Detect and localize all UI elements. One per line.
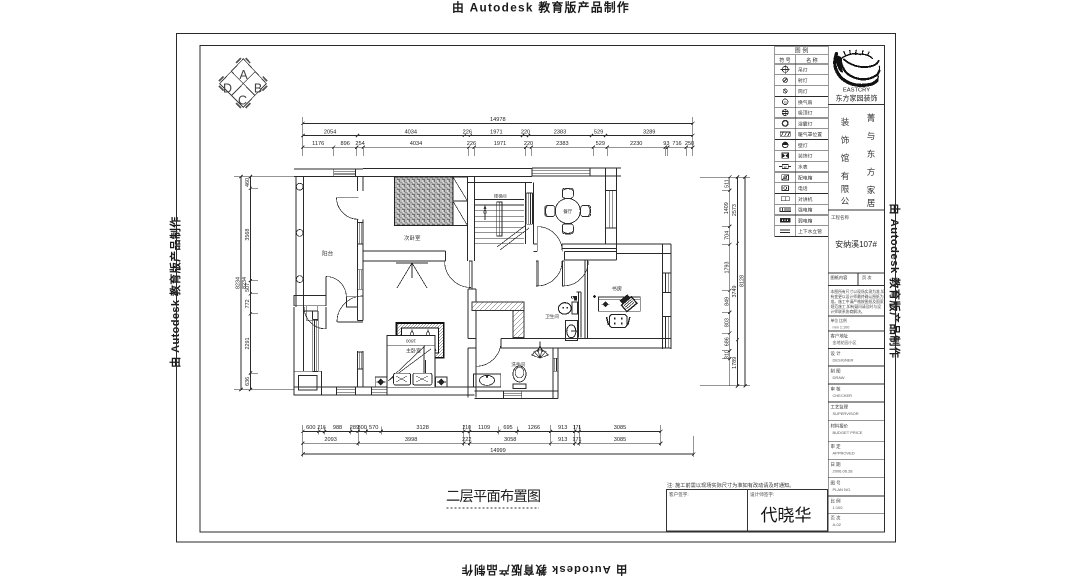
svg-text:射灯: 射灯 <box>798 77 808 84</box>
svg-text:171: 171 <box>573 425 582 431</box>
svg-text:2383: 2383 <box>556 141 568 147</box>
svg-text:G: G <box>784 101 787 105</box>
svg-text:代晓华: 代晓华 <box>761 506 812 525</box>
svg-text:A-02: A-02 <box>833 522 842 527</box>
svg-text:弱电箱: 弱电箱 <box>798 217 813 224</box>
svg-text:图纸内容: 图纸内容 <box>831 274 848 281</box>
svg-text:设计师签字:: 设计师签字: <box>750 491 774 498</box>
svg-text:570: 570 <box>369 425 378 431</box>
svg-text:460: 460 <box>245 178 251 187</box>
svg-text:913: 913 <box>558 437 567 443</box>
svg-text:装: 装 <box>841 117 850 127</box>
svg-text:226: 226 <box>463 129 472 135</box>
svg-text:卫生间: 卫生间 <box>545 313 559 320</box>
svg-text:2230: 2230 <box>630 141 642 147</box>
svg-text:东方家园装饰: 东方家园装饰 <box>836 94 878 103</box>
svg-text:220: 220 <box>521 129 530 135</box>
svg-text:3085: 3085 <box>614 437 626 443</box>
svg-text:本图所有尺寸以现场实测为准,如: 本图所有尺寸以现场实测为准,如 <box>831 289 885 294</box>
svg-text:3289: 3289 <box>643 129 655 135</box>
svg-text:东: 东 <box>867 149 876 159</box>
svg-text:EASTCRY: EASTCRY <box>843 88 870 94</box>
svg-text:529: 529 <box>594 129 603 135</box>
svg-text:菁: 菁 <box>867 113 876 123</box>
svg-text:暖气罩位置: 暖气罩位置 <box>798 131 822 138</box>
svg-text:页 次: 页 次 <box>862 274 872 281</box>
svg-text:D: D <box>223 82 232 96</box>
svg-text:1793: 1793 <box>724 261 730 273</box>
svg-text:686: 686 <box>724 337 730 346</box>
svg-text:单位 比例: 单位 比例 <box>831 318 847 323</box>
svg-text:有: 有 <box>841 171 850 181</box>
svg-text:3998: 3998 <box>405 437 417 443</box>
svg-text:1176: 1176 <box>312 141 324 147</box>
svg-text:896: 896 <box>341 141 350 147</box>
svg-text:695: 695 <box>503 425 512 431</box>
svg-text:1409: 1409 <box>724 202 730 214</box>
svg-text:3749: 3749 <box>732 286 738 298</box>
svg-text:93: 93 <box>663 141 669 147</box>
svg-text:DRAW: DRAW <box>833 375 845 380</box>
svg-text:强电箱: 强电箱 <box>798 207 813 214</box>
svg-text:装饰灯: 装饰灯 <box>798 153 813 160</box>
svg-text:餐厅: 餐厅 <box>563 208 573 215</box>
svg-text:设 计: 设 计 <box>831 350 842 357</box>
svg-text:吊灯: 吊灯 <box>798 66 808 73</box>
svg-text:页 次: 页 次 <box>831 515 842 522</box>
svg-text:SUPERVISOR: SUPERVISOR <box>833 411 859 416</box>
svg-text:日 期: 日 期 <box>831 462 842 468</box>
svg-text:2291: 2291 <box>245 337 251 349</box>
svg-text:C: C <box>238 94 247 108</box>
svg-text:对讲机: 对讲机 <box>798 196 813 203</box>
svg-text:主卧室: 主卧室 <box>406 348 421 355</box>
svg-text:1800: 1800 <box>405 339 416 344</box>
svg-text:审 定: 审 定 <box>831 443 842 450</box>
svg-text:4034: 4034 <box>405 129 417 135</box>
svg-text:APPROVED: APPROVED <box>833 451 855 456</box>
svg-text:由 Autodesk 教育版产品制作: 由 Autodesk 教育版产品制作 <box>461 563 628 576</box>
svg-text:A: A <box>239 68 248 82</box>
svg-text:1789: 1789 <box>732 357 738 369</box>
svg-text:988: 988 <box>333 425 342 431</box>
svg-text:家: 家 <box>867 185 876 195</box>
svg-text:913: 913 <box>558 425 567 431</box>
svg-text:220: 220 <box>524 141 533 147</box>
svg-text:配电箱: 配电箱 <box>798 174 813 181</box>
svg-text:材料报价: 材料报价 <box>831 422 849 429</box>
svg-text:3568: 3568 <box>245 229 251 241</box>
svg-text:2006.06.28: 2006.06.28 <box>833 469 854 474</box>
svg-text:上下水立管: 上下水立管 <box>798 228 822 235</box>
svg-text:公: 公 <box>841 196 850 206</box>
svg-text:饰: 饰 <box>841 135 850 145</box>
svg-text:300: 300 <box>358 425 367 431</box>
svg-text:计师联系协商解决。: 计师联系协商解决。 <box>831 309 865 314</box>
svg-text:PLAN NO.: PLAN NO. <box>833 487 852 492</box>
svg-text:772: 772 <box>245 299 251 308</box>
svg-text:226: 226 <box>467 141 476 147</box>
svg-text:客户签字:: 客户签字: <box>669 491 689 498</box>
svg-text:1971: 1971 <box>494 141 506 147</box>
svg-text:图 号: 图 号 <box>831 480 842 486</box>
svg-text:1109: 1109 <box>478 425 490 431</box>
svg-text:规范施工,如有疑问请及时与设: 规范施工,如有疑问请及时与设 <box>831 304 882 309</box>
svg-text:书房: 书房 <box>612 284 622 292</box>
svg-text:浴霸灯: 浴霸灯 <box>798 120 813 127</box>
svg-text:DESIGNER: DESIGNER <box>833 358 854 363</box>
svg-text:14999: 14999 <box>490 448 506 454</box>
svg-text:8128: 8128 <box>740 275 746 287</box>
svg-text:次卧室: 次卧室 <box>404 234 421 242</box>
svg-text:方: 方 <box>867 167 876 177</box>
svg-text:吸顶灯: 吸顶灯 <box>798 110 813 117</box>
svg-text:600: 600 <box>306 425 315 431</box>
svg-text:310: 310 <box>724 350 730 359</box>
svg-text:准。施工中请严格按图纸及国家: 准。施工中请严格按图纸及国家 <box>831 299 884 304</box>
svg-text:与: 与 <box>867 131 876 141</box>
svg-text:注: 施工前需以现场实际尺寸为准如有改动请及时通知。: 注: 施工前需以现场实际尺寸为准如有改动请及时通知。 <box>667 481 794 489</box>
svg-text:审 核: 审 核 <box>831 386 842 393</box>
svg-text:2054: 2054 <box>324 129 336 135</box>
svg-text:3085: 3085 <box>614 425 626 431</box>
svg-text:电话: 电话 <box>798 185 808 192</box>
svg-text:B: B <box>254 82 262 96</box>
svg-text:849: 849 <box>724 297 730 306</box>
svg-text:529: 529 <box>596 141 605 147</box>
svg-text:1266: 1266 <box>528 425 540 431</box>
svg-text:水表: 水表 <box>798 164 808 171</box>
svg-text:511: 511 <box>724 179 730 188</box>
svg-text:4034: 4034 <box>410 141 422 147</box>
svg-text:客户地址: 客户地址 <box>831 333 849 340</box>
svg-text:2093: 2093 <box>324 437 336 443</box>
svg-text:8234: 8234 <box>235 277 241 289</box>
svg-text:安纳溪107#: 安纳溪107# <box>835 239 877 249</box>
svg-text:14978: 14978 <box>490 117 506 123</box>
svg-text:工程名称: 工程名称 <box>831 214 849 221</box>
svg-text:3128: 3128 <box>416 425 428 431</box>
svg-text:222: 222 <box>462 437 471 443</box>
svg-text:壁灯: 壁灯 <box>798 142 808 149</box>
svg-text:3058: 3058 <box>504 437 516 443</box>
svg-text:名 称: 名 称 <box>806 57 817 64</box>
svg-text:716: 716 <box>672 141 681 147</box>
svg-text:图 例: 图 例 <box>795 47 809 55</box>
svg-text:楼梯间: 楼梯间 <box>494 193 507 200</box>
svg-text:居: 居 <box>867 198 876 208</box>
svg-text:2383: 2383 <box>554 129 566 135</box>
svg-text:2573: 2573 <box>732 204 738 216</box>
svg-text:金地花园小区: 金地花园小区 <box>833 339 857 345</box>
svg-text:W: W <box>784 165 787 169</box>
svg-text:限: 限 <box>841 184 850 194</box>
svg-text:704: 704 <box>724 231 730 240</box>
svg-text:8234: 8234 <box>242 277 248 289</box>
svg-text:1:100: 1:100 <box>833 505 844 510</box>
svg-text:馆: 馆 <box>841 153 850 163</box>
svg-text:有变更以设计师最终确认图纸为: 有变更以设计师最终确认图纸为 <box>831 294 884 299</box>
svg-text:比 例: 比 例 <box>831 498 842 505</box>
svg-text:254: 254 <box>355 141 364 147</box>
svg-text:mm 1:100: mm 1:100 <box>833 326 850 330</box>
svg-text:二层平面布置图: 二层平面布置图 <box>446 489 540 505</box>
svg-text:符 号: 符 号 <box>779 57 790 64</box>
svg-text:换气扇: 换气扇 <box>798 99 813 106</box>
svg-text:1971: 1971 <box>490 129 502 135</box>
svg-text:由 Autodesk 教育版产品制作: 由 Autodesk 教育版产品制作 <box>452 1 630 15</box>
svg-text:制 图: 制 图 <box>831 368 842 375</box>
svg-text:工艺监理: 工艺监理 <box>831 404 849 410</box>
svg-text:171: 171 <box>572 437 581 443</box>
svg-text:由 Autodesk 教育版产品制作: 由 Autodesk 教育版产品制作 <box>168 216 182 367</box>
svg-text:636: 636 <box>245 377 251 386</box>
svg-text:803: 803 <box>724 318 730 327</box>
svg-text:阳台: 阳台 <box>322 250 334 258</box>
svg-text:CHECKER: CHECKER <box>833 393 853 398</box>
svg-text:筒灯: 筒灯 <box>798 88 808 95</box>
svg-text:BUDGET PRICE: BUDGET PRICE <box>833 430 863 435</box>
